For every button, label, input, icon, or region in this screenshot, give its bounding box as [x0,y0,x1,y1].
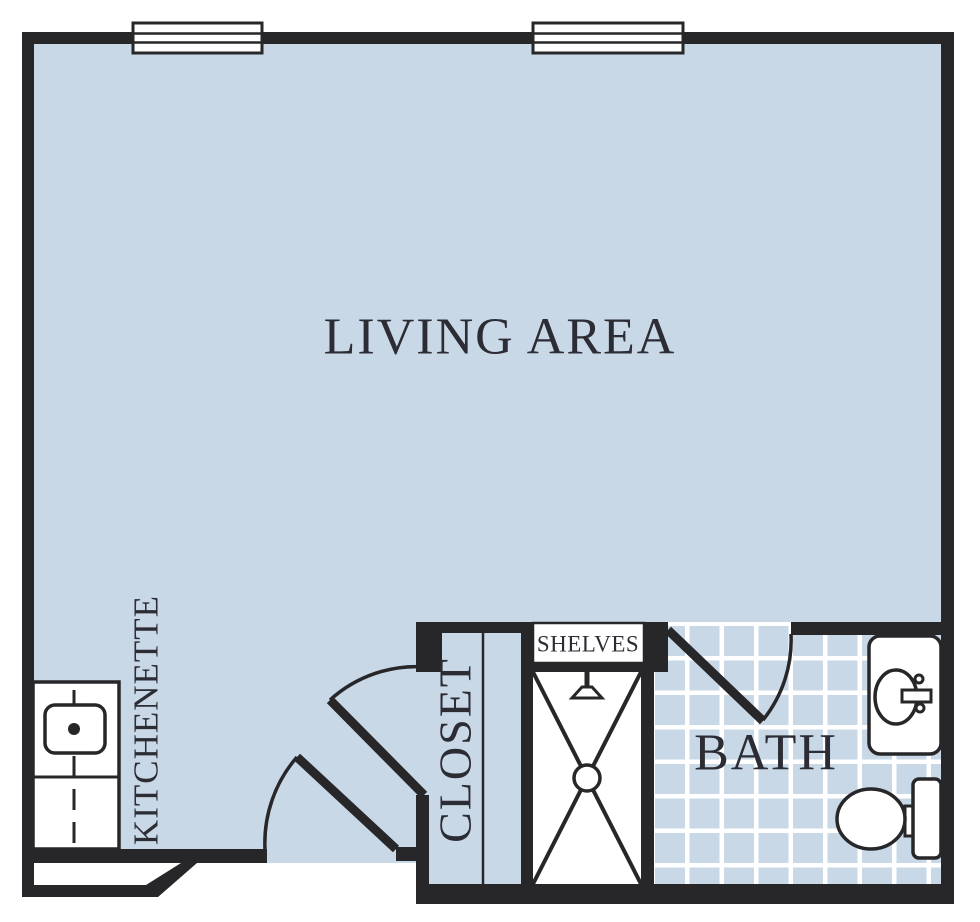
living-area-label: LIVING AREA [324,309,677,366]
window-icon [533,23,683,53]
wall-entry-porch [22,863,197,897]
entry-threshold [267,849,396,863]
floor-plan: SHELVES [0,0,980,922]
faucet-knob [915,675,923,683]
wall-bottom-right [416,884,954,904]
bath-label: BATH [694,725,838,782]
wall-closet-left-lower [416,795,429,884]
wall-bath-top [791,622,941,635]
bathroom-sink-icon [869,636,941,754]
wall-right [941,32,954,904]
toilet-tank [913,779,941,858]
shower-drain-icon [574,765,600,791]
faucet-knob [916,704,924,712]
wall-closet-top [416,622,533,633]
kitchenette-label: KITCHENETTE [127,595,166,845]
kitchenette-counter [33,682,119,849]
closet-label: CLOSET [430,657,481,843]
sink-drain-icon [68,723,80,735]
wall-entry-jamb [396,847,416,861]
shower [533,665,641,884]
shelf-unit: SHELVES [533,623,644,663]
shelves-label: SHELVES [537,632,639,657]
faucet-icon [902,690,931,702]
toilet-bowl [837,789,905,849]
window-icon [133,23,262,53]
wall-bottom-left [22,849,267,863]
floor-plan-drawing: SHELVES [0,0,980,922]
